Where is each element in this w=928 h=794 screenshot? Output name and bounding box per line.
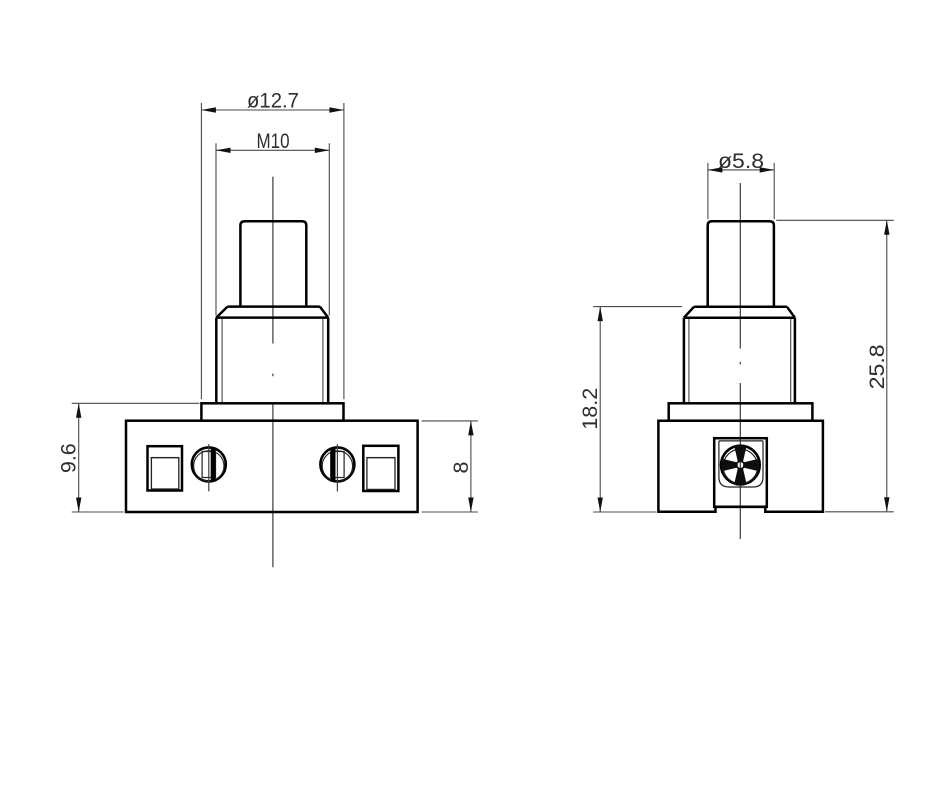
svg-text:18.2: 18.2 — [578, 388, 602, 430]
svg-text:25.8: 25.8 — [865, 344, 889, 389]
svg-text:9.6: 9.6 — [57, 443, 81, 473]
svg-text:ø12.7: ø12.7 — [247, 89, 299, 113]
svg-text:M10: M10 — [257, 129, 290, 153]
svg-text:ø5.8: ø5.8 — [718, 149, 764, 173]
svg-text:8: 8 — [449, 461, 473, 473]
